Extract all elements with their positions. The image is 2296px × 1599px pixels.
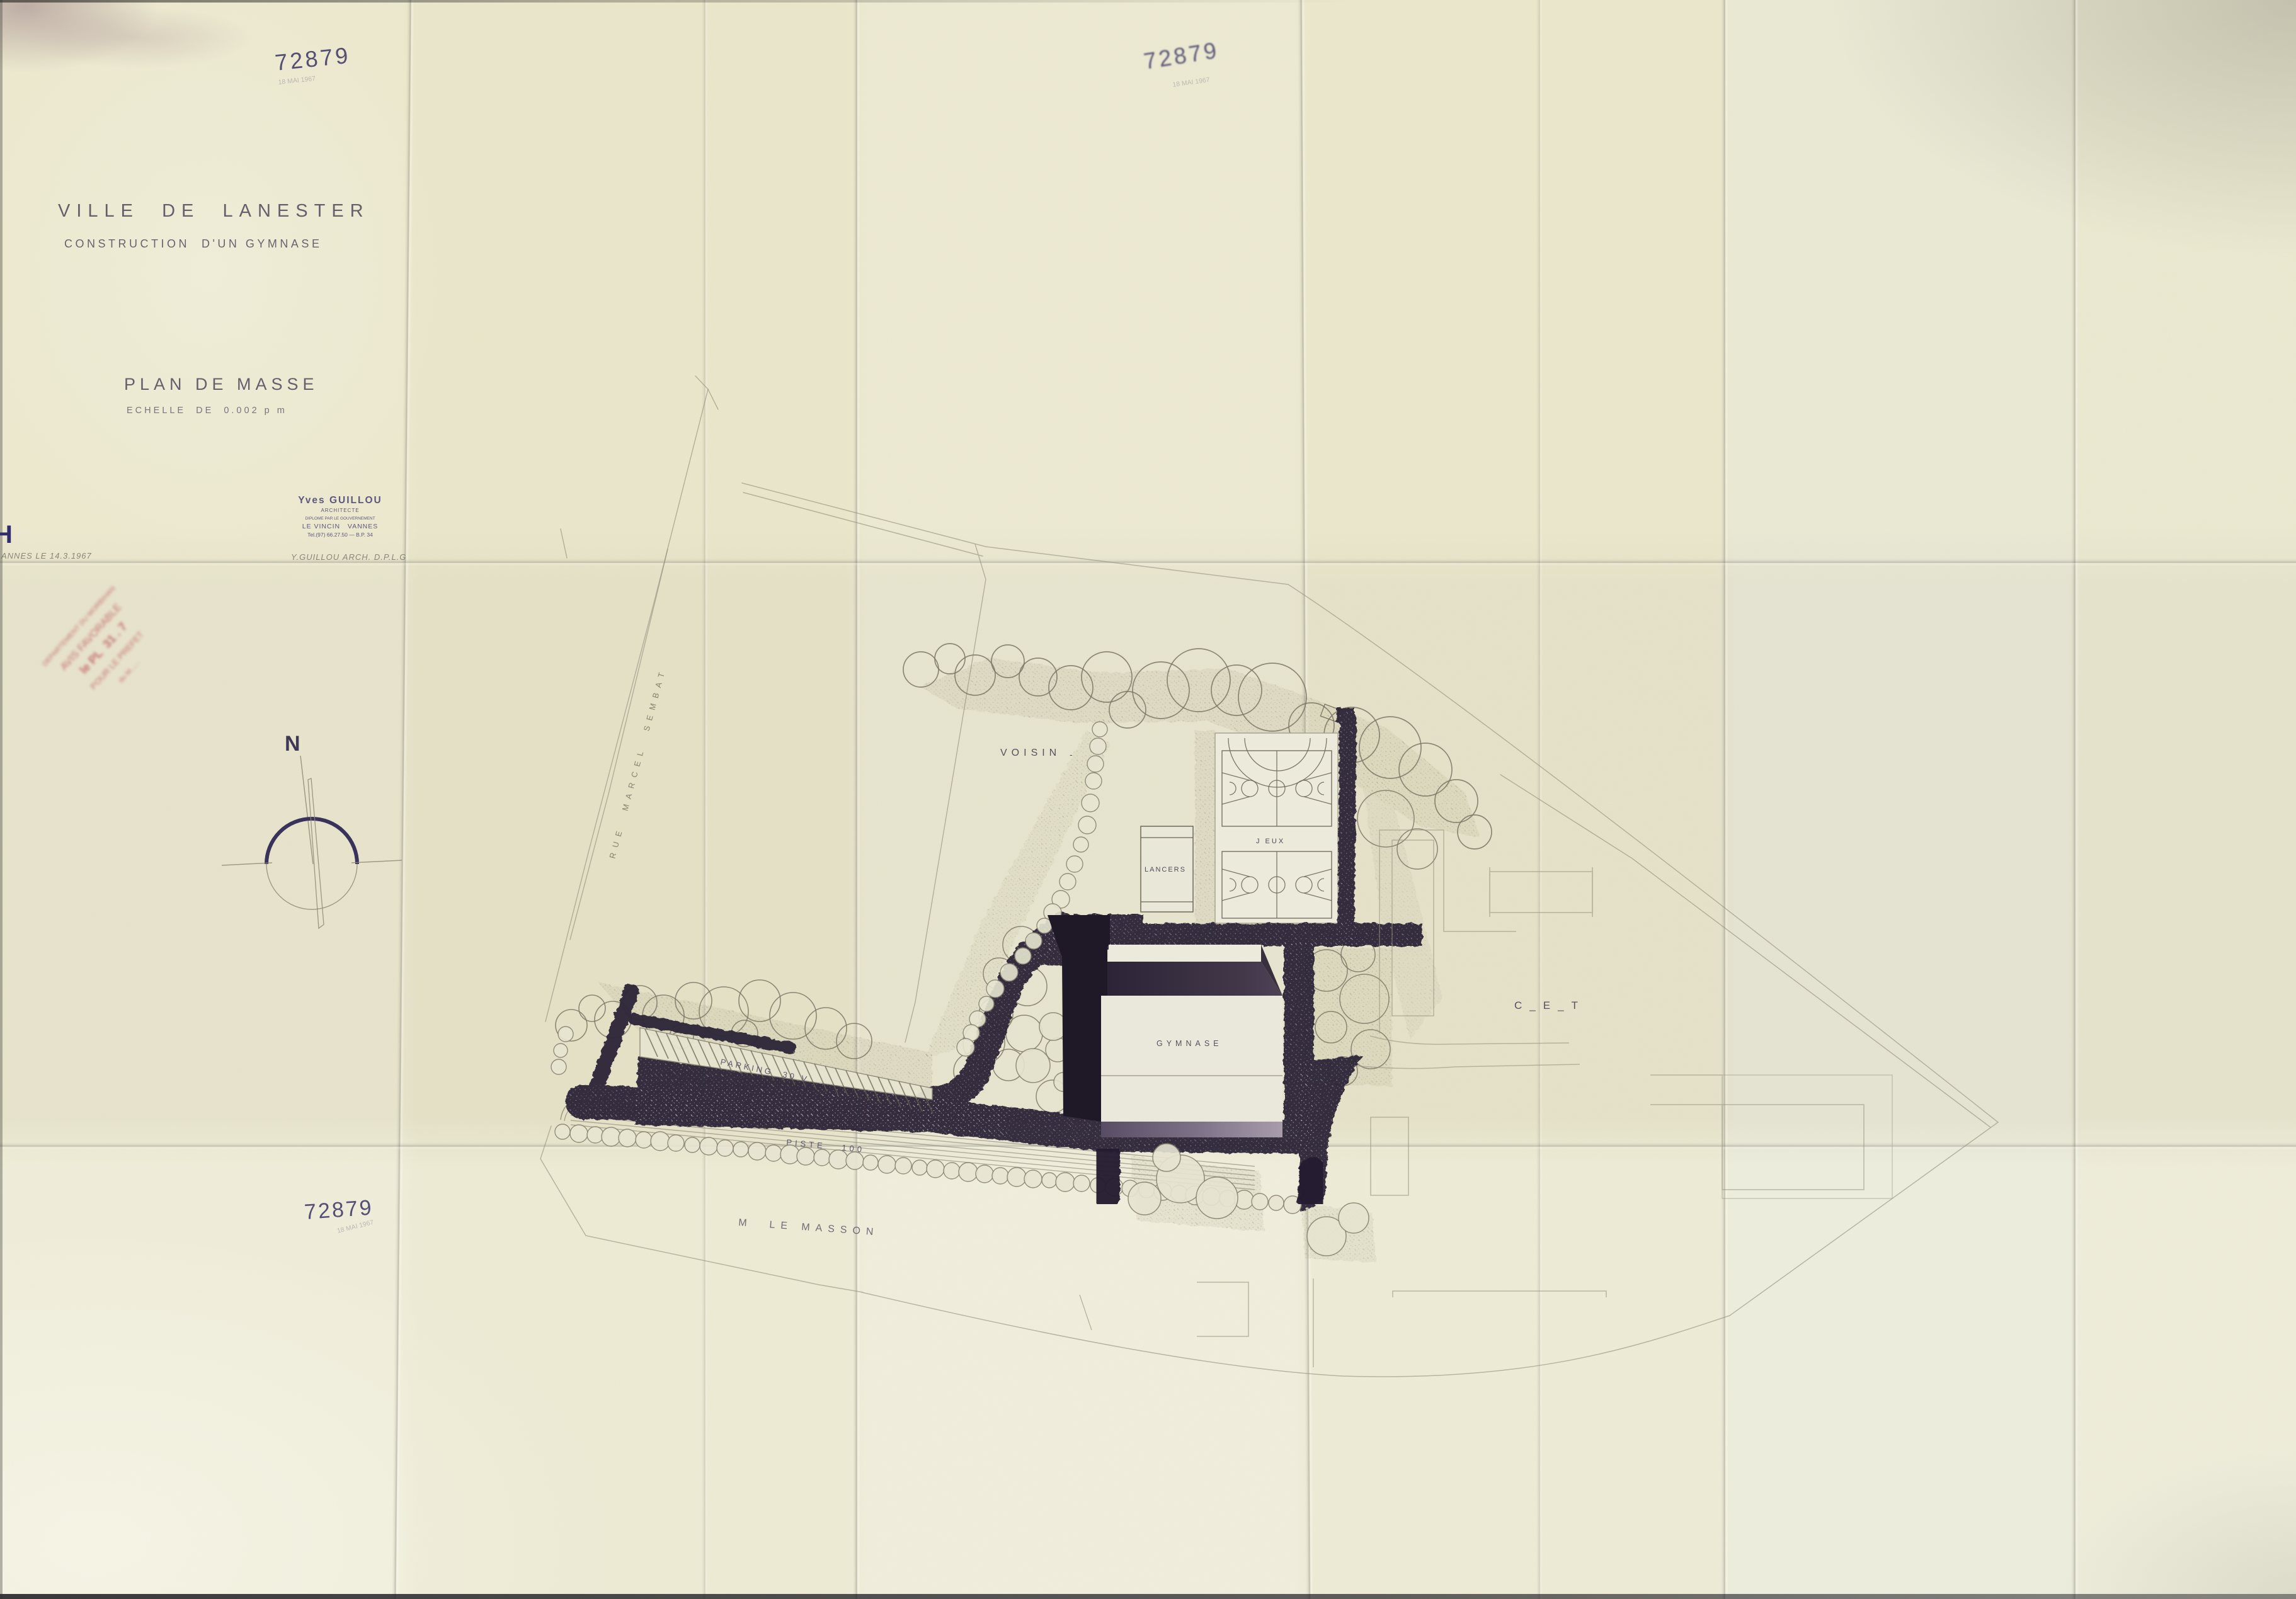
svg-text:C_E_T: C_E_T — [1514, 999, 1585, 1011]
svg-text:CONSTRUCTION D'UN GYMNASE: CONSTRUCTION D'UN GYMNASE — [64, 237, 322, 250]
svg-text:J EUX: J EUX — [1256, 838, 1285, 845]
svg-text:Tel.(97) 66.27.50 — B.P. 34: Tel.(97) 66.27.50 — B.P. 34 — [307, 532, 373, 538]
svg-text:H: H — [0, 521, 13, 549]
svg-text:DIPLOME PAR LE GOUVERNEMENT: DIPLOME PAR LE GOUVERNEMENT — [305, 516, 375, 521]
svg-text:Yves GUILLOU: Yves GUILLOU — [298, 495, 382, 506]
svg-text:ANNES LE 14.3.1967: ANNES LE 14.3.1967 — [1, 551, 92, 561]
svg-text:72879: 72879 — [304, 1195, 374, 1224]
svg-text:GYMNASE: GYMNASE — [1157, 1039, 1223, 1048]
svg-text:-: - — [1070, 749, 1073, 760]
svg-text:LE VINCIN VANNES: LE VINCIN VANNES — [302, 523, 379, 530]
svg-text:VOISIN: VOISIN — [1000, 748, 1061, 758]
svg-text:PLAN DE MASSE: PLAN DE MASSE — [124, 375, 319, 394]
svg-text:Y.GUILLOU ARCH. D.P.L.G: Y.GUILLOU ARCH. D.P.L.G — [291, 552, 406, 562]
svg-text:VILLE DE LANESTER: VILLE DE LANESTER — [58, 201, 370, 221]
svg-text:LANCERS: LANCERS — [1145, 866, 1186, 873]
svg-text:ECHELLE DE 0.002 p m: ECHELLE DE 0.002 p m — [127, 406, 287, 416]
svg-text:ARCHITECTE: ARCHITECTE — [321, 508, 359, 513]
svg-text:N: N — [285, 732, 300, 756]
